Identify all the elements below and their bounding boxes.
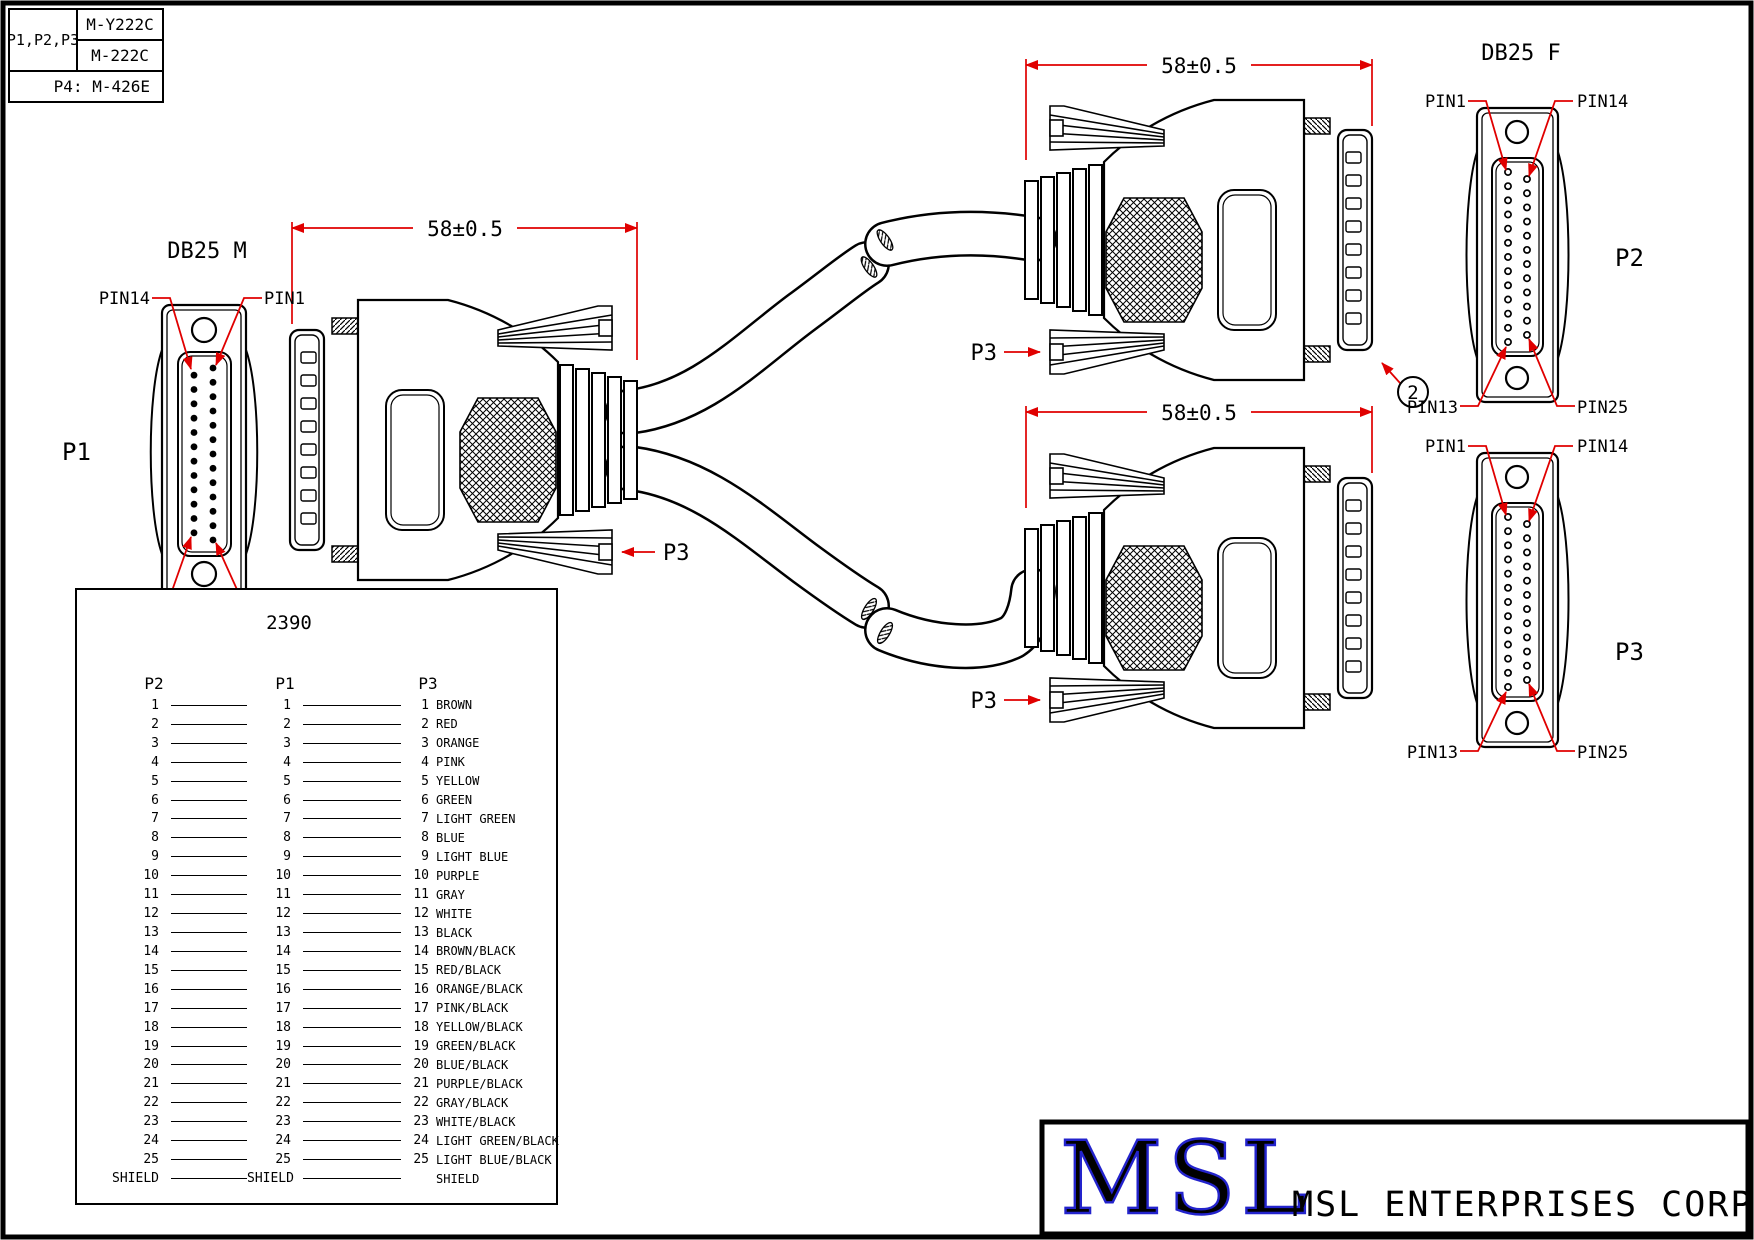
- wire-line: [303, 1027, 401, 1028]
- screw-hole-top: [192, 318, 216, 342]
- wire-line: [171, 970, 247, 971]
- wire-line: [303, 1064, 401, 1065]
- wiring-row: 181818YELLOW/BLACK: [80, 1018, 553, 1037]
- cable-callout-bottom: P3: [971, 689, 1041, 714]
- wiring-row: 333ORANGE: [80, 734, 553, 753]
- connector-type-label: DB25 F: [1481, 41, 1560, 66]
- cable-upper-leg: [628, 228, 1034, 412]
- p1-pin: 4: [247, 755, 291, 770]
- p3-pin: 6: [401, 793, 429, 808]
- p1-pin: 8: [247, 830, 291, 845]
- p2-pin: 15: [80, 963, 159, 978]
- male-pin: [191, 386, 198, 393]
- p3-pin: 12: [401, 906, 429, 921]
- p3-pin: 8: [401, 830, 429, 845]
- pin-label: PIN1: [1425, 437, 1466, 457]
- wire-line: [303, 1121, 401, 1122]
- wire-line: [171, 800, 247, 801]
- p1-pin: 6: [247, 793, 291, 808]
- part-number-table: P1,P2,P3 M-Y222C M-222C P4: M-426E: [8, 8, 168, 108]
- male-pin: [210, 494, 217, 501]
- p2-pin: 19: [80, 1039, 159, 1054]
- wiring-row: 101010PURPLE: [80, 866, 553, 885]
- p1-pin: 21: [247, 1076, 291, 1091]
- wiring-row: 222222GRAY/BLACK: [80, 1093, 553, 1112]
- p3-pin: 15: [401, 963, 429, 978]
- male-pin: [191, 372, 198, 379]
- screw-hole-top: [1506, 121, 1528, 143]
- male-pin: [210, 393, 217, 400]
- p3-pin: 10: [401, 868, 429, 883]
- p3-pin: 14: [401, 944, 429, 959]
- wire-line: [303, 1178, 401, 1179]
- male-pin: [210, 379, 217, 386]
- pin-label: PIN14: [1577, 92, 1628, 112]
- p3-pin: 2: [401, 717, 429, 732]
- p3-pin: 7: [401, 811, 429, 826]
- male-pin: [191, 429, 198, 436]
- wire-line: [171, 781, 247, 782]
- wiring-row: 777LIGHT GREEN: [80, 810, 553, 829]
- wiring-row: 212121PURPLE/BLACK: [80, 1074, 553, 1093]
- wire-line: [171, 1121, 247, 1122]
- strain-relief: [560, 365, 637, 515]
- male-pin: [191, 415, 198, 422]
- connector-ref-label: P3: [1615, 638, 1644, 666]
- part-table-p4-cell: P4: M-426E: [8, 70, 164, 103]
- molded-hood-p1: [290, 300, 637, 580]
- wire-line: [303, 837, 401, 838]
- pin-label: PIN14: [1577, 437, 1628, 457]
- p1-pin: 2: [247, 717, 291, 732]
- male-pin: [210, 436, 217, 443]
- p3-pin: 13: [401, 925, 429, 940]
- wire-line: [303, 1046, 401, 1047]
- wire-line: [171, 989, 247, 990]
- p2-pin: 12: [80, 906, 159, 921]
- male-pin: [210, 465, 217, 472]
- p1-pin: 24: [247, 1133, 291, 1148]
- knurled-grip: [460, 398, 556, 522]
- connector-ref-label: P1: [62, 438, 91, 466]
- p3-pin: 22: [401, 1095, 429, 1110]
- dimension-text: 58±0.5: [1161, 54, 1237, 78]
- wiring-row: 242424LIGHT GREEN/BLACK: [80, 1131, 553, 1150]
- p3-pin: 4: [401, 755, 429, 770]
- drawing-sheet: 58±0.5 58±0.5 58±0.5 P3 P3 P3 2 DB25 M P…: [0, 0, 1754, 1240]
- p2-pin: 6: [80, 793, 159, 808]
- jackscrew-wing-bottom: [498, 530, 612, 574]
- p3-pin: 5: [401, 774, 429, 789]
- wire-line: [171, 1083, 247, 1084]
- p2-pin: 14: [80, 944, 159, 959]
- wire-line: [303, 781, 401, 782]
- part-table-part-b-cell: M-222C: [76, 39, 164, 72]
- wiring-table-header-p2: P2: [134, 674, 174, 693]
- wire-color: PINK/BLACK: [436, 1001, 508, 1015]
- wiring-row: 111111GRAY: [80, 885, 553, 904]
- p1-pin: 3: [247, 736, 291, 751]
- wire-line: [171, 1064, 247, 1065]
- p2-pin: 16: [80, 982, 159, 997]
- wire-color: WHITE: [436, 907, 472, 921]
- p2-pin: 13: [80, 925, 159, 940]
- wire-line: [171, 1027, 247, 1028]
- cable-callout-top: P3: [971, 341, 1041, 366]
- male-pin: [191, 486, 198, 493]
- jackscrew-wing-top: [498, 306, 612, 350]
- cable-callout-label: P3: [663, 541, 690, 566]
- label-window: [386, 390, 444, 530]
- wire-line: [171, 875, 247, 876]
- p3-pin: 16: [401, 982, 429, 997]
- wire-color: LIGHT GREEN/BLACK: [436, 1134, 559, 1148]
- pin-label: PIN1: [1425, 92, 1466, 112]
- p2-pin: 17: [80, 1001, 159, 1016]
- wire-line: [303, 951, 401, 952]
- wiring-row: 121212WHITE: [80, 904, 553, 923]
- molded-hood-p2: [1025, 100, 1372, 380]
- male-pin: [210, 422, 217, 429]
- male-pin: [191, 515, 198, 522]
- wire-line: [303, 856, 401, 857]
- p2-pin: 24: [80, 1133, 159, 1148]
- p2-pin: 18: [80, 1020, 159, 1035]
- p2-pin: 9: [80, 849, 159, 864]
- screw-hole-bottom: [1506, 712, 1528, 734]
- p2-pin: 3: [80, 736, 159, 751]
- screw-hole-top: [1506, 466, 1528, 488]
- dimension-text: 58±0.5: [1161, 401, 1237, 425]
- wiring-row: 202020BLUE/BLACK: [80, 1056, 553, 1075]
- connector-p3-face: P3 PIN1 PIN14 PIN13 PIN25: [1407, 437, 1644, 763]
- p1-pin: 19: [247, 1039, 291, 1054]
- wiring-row: 141414BROWN/BLACK: [80, 942, 553, 961]
- wire-line: [171, 762, 247, 763]
- wire-color: BLACK: [436, 926, 472, 940]
- wiring-row: 888BLUE: [80, 828, 553, 847]
- p3-pin: 20: [401, 1057, 429, 1072]
- p3-pin: 1: [401, 698, 429, 713]
- p1-pin: 23: [247, 1114, 291, 1129]
- wire-line: [303, 894, 401, 895]
- male-pin: [191, 501, 198, 508]
- p2-pin: 5: [80, 774, 159, 789]
- wiring-row: 666GREEN: [80, 791, 553, 810]
- wiring-row: 252525LIGHT BLUE/BLACK: [80, 1150, 553, 1169]
- wiring-table-header-p1: P1: [265, 674, 305, 693]
- p1-pin: 15: [247, 963, 291, 978]
- wiring-row: 444PINK: [80, 753, 553, 772]
- wire-color: GREEN/BLACK: [436, 1039, 515, 1053]
- wire-color: BROWN/BLACK: [436, 944, 515, 958]
- jackscrew-stud-bottom: [332, 546, 358, 562]
- wire-color: RED: [436, 717, 458, 731]
- jackscrew-stud-top: [332, 318, 358, 334]
- p3-pin: 19: [401, 1039, 429, 1054]
- wire-line: [303, 705, 401, 706]
- connector-type-label: DB25 M: [167, 239, 246, 264]
- p1-pin: 12: [247, 906, 291, 921]
- p2-pin: 25: [80, 1152, 159, 1167]
- screw-hole-bottom: [192, 562, 216, 586]
- wire-color: WHITE/BLACK: [436, 1115, 515, 1129]
- p2-pin: 22: [80, 1095, 159, 1110]
- wire-line: [303, 1140, 401, 1141]
- wire-color: LIGHT BLUE: [436, 850, 508, 864]
- wire-line: [171, 913, 247, 914]
- wire-color: GRAY: [436, 888, 465, 902]
- wiring-row: 232323WHITE/BLACK: [80, 1112, 553, 1131]
- wire-line: [171, 743, 247, 744]
- p2-pin: 11: [80, 887, 159, 902]
- wire-color: PURPLE: [436, 869, 479, 883]
- wire-line: [303, 989, 401, 990]
- p1-pin: 1: [247, 698, 291, 713]
- male-pin: [210, 537, 217, 544]
- wiring-row: 171717PINK/BLACK: [80, 999, 553, 1018]
- wire-line: [303, 932, 401, 933]
- wire-line: [171, 705, 247, 706]
- dimension-text: 58±0.5: [427, 217, 503, 241]
- wire-color: PURPLE/BLACK: [436, 1077, 523, 1091]
- wire-color: GRAY/BLACK: [436, 1096, 508, 1110]
- part-table-connectors-cell: P1,P2,P3: [8, 8, 78, 72]
- wiring-row: 191919GREEN/BLACK: [80, 1037, 553, 1056]
- p1-pin: 11: [247, 887, 291, 902]
- screw-hole-bottom: [1506, 367, 1528, 389]
- wire-line: [303, 818, 401, 819]
- wire-line: [171, 951, 247, 952]
- wire-color: GREEN: [436, 793, 472, 807]
- p3-pin: 9: [401, 849, 429, 864]
- p3-pin: 18: [401, 1020, 429, 1035]
- p2-pin: 23: [80, 1114, 159, 1129]
- company-name: MSL ENTERPRISES CORP.: [1292, 1185, 1754, 1225]
- connector-p2-face: DB25 F P2 PIN1 PIN14 PIN13 PIN25: [1407, 41, 1644, 418]
- p3-pin: 11: [401, 887, 429, 902]
- wire-color: YELLOW/BLACK: [436, 1020, 523, 1034]
- wire-line: [171, 818, 247, 819]
- p1-pin: 18: [247, 1020, 291, 1035]
- male-pin: [191, 443, 198, 450]
- wire-line: [171, 1046, 247, 1047]
- male-pin: [210, 522, 217, 529]
- wire-line: [303, 970, 401, 971]
- wire-line: [303, 913, 401, 914]
- wire-color: YELLOW: [436, 774, 479, 788]
- pin-label: PIN14: [99, 289, 150, 309]
- company-logo: MSL: [1060, 1120, 1312, 1237]
- wire-color: ORANGE/BLACK: [436, 982, 523, 996]
- wire-line: [171, 1178, 247, 1179]
- wire-color: BROWN: [436, 698, 472, 712]
- connector-ref-label: P2: [1615, 244, 1644, 272]
- wire-line: [303, 875, 401, 876]
- pin-label: PIN25: [1577, 398, 1628, 418]
- wire-color: ORANGE: [436, 736, 479, 750]
- part-table-part-a-cell: M-Y222C: [76, 8, 164, 41]
- wiring-table-rows: 111BROWN222RED333ORANGE444PINK555YELLOW6…: [80, 696, 553, 1188]
- wire-color: SHIELD: [436, 1172, 479, 1186]
- p1-pin: 9: [247, 849, 291, 864]
- wire-color: BLUE/BLACK: [436, 1058, 508, 1072]
- cable-callout-label: P3: [971, 341, 998, 366]
- p2-pin: 7: [80, 811, 159, 826]
- male-pin: [191, 400, 198, 407]
- wiring-table-title: 2390: [239, 612, 339, 634]
- wire-color: LIGHT GREEN: [436, 812, 515, 826]
- male-pin: [210, 365, 217, 372]
- wiring-table: 2390 P2 P1 P3 111BROWN222RED333ORANGE444…: [75, 588, 558, 1205]
- wire-color: RED/BLACK: [436, 963, 501, 977]
- wire-line: [303, 800, 401, 801]
- wire-line: [171, 1008, 247, 1009]
- wiring-row: 161616ORANGE/BLACK: [80, 980, 553, 999]
- p3-pin: 3: [401, 736, 429, 751]
- p1-pin: 10: [247, 868, 291, 883]
- male-pin: [210, 508, 217, 515]
- p3-pin: 24: [401, 1133, 429, 1148]
- wire-line: [171, 1159, 247, 1160]
- cable-callout-center: P3: [622, 541, 690, 566]
- wire-line: [303, 762, 401, 763]
- p2-pin: 21: [80, 1076, 159, 1091]
- wire-line: [303, 724, 401, 725]
- pin-label: PIN13: [1407, 743, 1458, 763]
- p1-pin: 17: [247, 1001, 291, 1016]
- p2-pin: 4: [80, 755, 159, 770]
- title-block: MSL MSL ENTERPRISES CORP.: [1042, 1120, 1754, 1237]
- male-pin: [210, 451, 217, 458]
- wire-line: [303, 743, 401, 744]
- p2-pin: SHIELD: [80, 1171, 159, 1186]
- wiring-row: 151515RED/BLACK: [80, 961, 553, 980]
- wire-line: [303, 1159, 401, 1160]
- p1-pin: 20: [247, 1057, 291, 1072]
- p1-pin: 5: [247, 774, 291, 789]
- wire-line: [303, 1083, 401, 1084]
- male-pin: [191, 529, 198, 536]
- p2-pin: 2: [80, 717, 159, 732]
- p3-pin: 23: [401, 1114, 429, 1129]
- cable-callout-label: P3: [971, 689, 998, 714]
- pin-label: PIN1: [264, 289, 305, 309]
- p1-pin: 14: [247, 944, 291, 959]
- wire-line: [171, 837, 247, 838]
- p1-pin: 22: [247, 1095, 291, 1110]
- wire-line: [171, 1102, 247, 1103]
- wire-line: [171, 932, 247, 933]
- wire-line: [171, 1140, 247, 1141]
- male-pin: [191, 472, 198, 479]
- p2-pin: 8: [80, 830, 159, 845]
- wire-color: LIGHT BLUE/BLACK: [436, 1153, 552, 1167]
- p2-pin: 20: [80, 1057, 159, 1072]
- p1-pin: 13: [247, 925, 291, 940]
- connector-p1-face: DB25 M P1 PIN14 PIN1 PIN25 PIN13: [62, 239, 315, 617]
- wiring-row: 222RED: [80, 715, 553, 734]
- pin-label: PIN13: [1407, 398, 1458, 418]
- wiring-row: 999LIGHT BLUE: [80, 847, 553, 866]
- p1-pin: 7: [247, 811, 291, 826]
- p1-pin: SHIELD: [247, 1171, 291, 1186]
- wire-line: [171, 894, 247, 895]
- p3-pin: 21: [401, 1076, 429, 1091]
- wire-color: BLUE: [436, 831, 465, 845]
- male-pin: [191, 458, 198, 465]
- p2-pin: 10: [80, 868, 159, 883]
- p1-pin: 25: [247, 1152, 291, 1167]
- wire-line: [303, 1008, 401, 1009]
- wiring-row: 555YELLOW: [80, 772, 553, 791]
- wire-color: PINK: [436, 755, 465, 769]
- male-pin: [210, 408, 217, 415]
- molded-hood-p3: [1025, 448, 1372, 728]
- wiring-row: SHIELDSHIELDSHIELD: [80, 1169, 553, 1188]
- p1-pin: 16: [247, 982, 291, 997]
- wire-line: [303, 1102, 401, 1103]
- wire-line: [171, 856, 247, 857]
- wiring-row: 111BROWN: [80, 696, 553, 715]
- male-pin: [210, 479, 217, 486]
- wiring-table-header-p3: P3: [408, 674, 448, 693]
- p2-pin: 1: [80, 698, 159, 713]
- pin-label: PIN25: [1577, 743, 1628, 763]
- wiring-row: 131313BLACK: [80, 923, 553, 942]
- wire-line: [171, 724, 247, 725]
- p3-pin: 25: [401, 1152, 429, 1167]
- p3-pin: 17: [401, 1001, 429, 1016]
